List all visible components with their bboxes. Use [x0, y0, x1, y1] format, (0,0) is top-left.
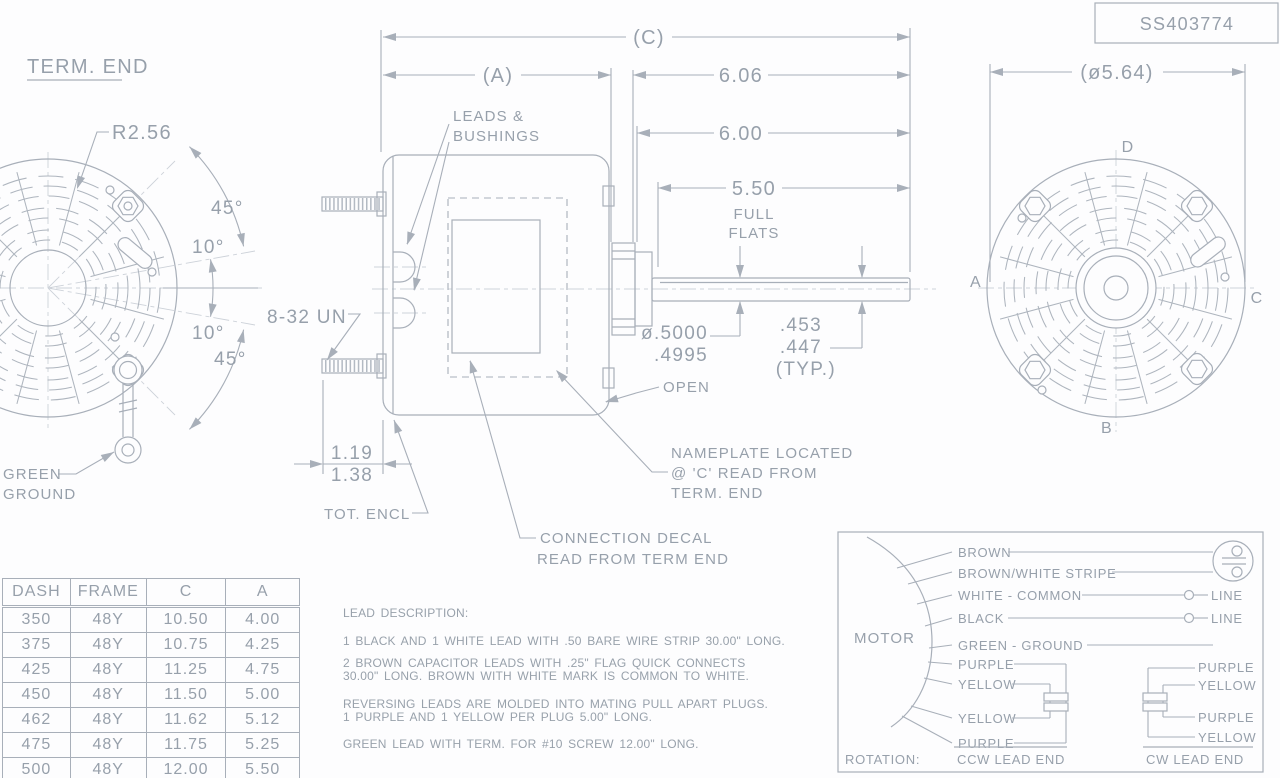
lead-description-line: GREEN LEAD WITH TERM. FOR #10 SCREW 12.0…	[343, 738, 823, 751]
cw-purple-bottom-label: PURPLE	[1198, 710, 1254, 725]
nameplate-note-1: NAMEPLATE LOCATED	[671, 445, 853, 462]
cell-frame: 48Y	[70, 683, 146, 708]
cell-a: 4.75	[226, 658, 300, 683]
table-row: 500 48Y 12.00 5.50	[3, 758, 300, 778]
decal-note-1: CONNECTION DECAL	[540, 530, 713, 547]
green-ground-label-1: GREEN	[3, 466, 62, 483]
cell-c: 11.50	[146, 683, 226, 708]
table-row: 425 48Y 11.25 4.75	[3, 658, 300, 683]
cell-a: 5.50	[226, 758, 300, 778]
cell-a: 5.12	[226, 708, 300, 733]
dim-c-label: (C)	[633, 27, 665, 49]
ccw-plug: PURPLE YELLOW YELLOW PURPLE	[958, 657, 1068, 751]
term-end-view: TERM. END R2.56 45° 10° 10° 45° GREEN GR…	[0, 56, 262, 503]
stud-dim-label-1: 1.19	[331, 443, 373, 464]
rotation-ccw-label: CCW LEAD END	[957, 752, 1065, 767]
lead-brown-white-label: BROWN/WHITE STRIPE	[958, 566, 1117, 581]
lead-description: LEAD DESCRIPTION: 1 BLACK AND 1 WHITE LE…	[343, 607, 823, 751]
cell-c: 10.50	[146, 607, 226, 633]
rotation-cw-label: CW LEAD END	[1146, 752, 1244, 767]
ground-terminal-bolt	[110, 352, 147, 463]
cell-c: 11.25	[146, 658, 226, 683]
cell-c: 12.00	[146, 758, 226, 778]
cell-dash: 450	[3, 683, 71, 708]
motor-label: MOTOR	[854, 630, 915, 647]
line-label-top: LINE	[1211, 588, 1243, 603]
green-ground-label-2: GROUND	[3, 486, 76, 503]
line-terminal-bottom	[1185, 614, 1194, 623]
drawing-canvas: TERM. END R2.56 45° 10° 10° 45° GREEN GR…	[0, 0, 1280, 778]
ccw-yellow-bottom-label: YELLOW	[958, 711, 1016, 726]
spec-table: DASH FRAME C A 350 48Y 10.50 4.00 375 48…	[2, 578, 300, 778]
col-header-frame: FRAME	[70, 579, 146, 607]
dim-dia-564-label: (ø5.64)	[1080, 62, 1154, 84]
marker-b: B	[1101, 420, 1113, 437]
full-flats-label-2: FLATS	[728, 225, 779, 242]
cell-c: 10.75	[146, 633, 226, 658]
cell-frame: 48Y	[70, 633, 146, 658]
lead-black-label: BLACK	[958, 611, 1004, 626]
cw-yellow-bottom-label: YELLOW	[1198, 730, 1256, 745]
col-header-a: A	[226, 579, 300, 607]
cell-dash: 462	[3, 708, 71, 733]
shaft-end-view: (ø5.64) A C B D	[970, 62, 1263, 437]
nameplate-note-2: @ 'C' READ FROM	[671, 465, 818, 482]
side-view: (C) (A) 6.06 6.00 5.50 FULL FLATS ø.5000	[267, 27, 936, 568]
stud-dim-label-2: 1.38	[331, 465, 373, 486]
cell-frame: 48Y	[70, 708, 146, 733]
wiring-diagram: MOTOR BROWN BROWN/WHITE STRIPE WHITE - C…	[838, 532, 1263, 772]
cell-dash: 375	[3, 633, 71, 658]
cell-dash: 425	[3, 658, 71, 683]
dim-a-label: (A)	[483, 65, 514, 87]
angle-10-top-label: 10°	[192, 237, 225, 258]
table-row: 475 48Y 11.75 5.25	[3, 733, 300, 758]
lead-green-ground-label: GREEN - GROUND	[958, 638, 1083, 653]
cell-dash: 350	[3, 607, 71, 633]
cell-c: 11.62	[146, 708, 226, 733]
mounting-bolt-top-left-view	[110, 188, 147, 225]
ccw-yellow-top-label: YELLOW	[958, 677, 1016, 692]
cw-purple-top-label: PURPLE	[1198, 660, 1254, 675]
leads-note-2: BUSHINGS	[453, 128, 540, 145]
table-row: 450 48Y 11.50 5.00	[3, 683, 300, 708]
cell-dash: 500	[3, 758, 71, 778]
angle-10-bottom-label: 10°	[192, 323, 225, 344]
cw-plug: PURPLE YELLOW PURPLE YELLOW	[1143, 660, 1256, 745]
cell-a: 4.00	[226, 607, 300, 633]
nameplate-note-3: TERM. END	[671, 485, 763, 502]
line-label-bottom: LINE	[1211, 611, 1243, 626]
table-row: 350 48Y 10.50 4.00	[3, 607, 300, 633]
angle-45-bottom-label: 45°	[214, 349, 247, 370]
open-note-label: OPEN	[663, 379, 710, 396]
term-end-title: TERM. END	[27, 56, 149, 78]
dim-550-label: 5.50	[732, 178, 776, 200]
capacitor-symbol	[1213, 541, 1253, 581]
shaft-dia-label-1: ø.5000	[641, 323, 708, 344]
ccw-purple-top-label: PURPLE	[958, 657, 1014, 672]
cell-a: 5.00	[226, 683, 300, 708]
lead-brown-label: BROWN	[958, 545, 1011, 560]
ccw-plug-connector	[1044, 693, 1068, 701]
ccw-purple-bottom-label: PURPLE	[958, 736, 1014, 751]
angle-45-top-label: 45°	[211, 198, 244, 219]
cell-frame: 48Y	[70, 607, 146, 633]
table-row: 462 48Y 11.62 5.12	[3, 708, 300, 733]
line-terminal-top	[1185, 591, 1194, 600]
lead-description-line: 1 PURPLE AND 1 YELLOW PER PLUG 5.00" LON…	[343, 711, 823, 724]
stud-thread-label: 8-32 UN	[267, 307, 347, 328]
dim-606-label: 6.06	[719, 65, 763, 87]
cw-plug-connector	[1143, 693, 1167, 701]
marker-a: A	[970, 274, 982, 291]
marker-c: C	[1251, 290, 1264, 307]
part-number-box: SS403774	[1095, 3, 1278, 43]
col-header-dash: DASH	[3, 579, 71, 607]
flat-dim-label-2: .447	[780, 337, 822, 358]
lead-white-common-label: WHITE - COMMON	[958, 588, 1082, 603]
flat-dim-label-1: .453	[780, 315, 822, 336]
radius-dim-label: R2.56	[112, 122, 172, 144]
lead-description-title: LEAD DESCRIPTION:	[343, 607, 823, 620]
full-flats-label-1: FULL	[733, 206, 774, 223]
decal-note-2: READ FROM TERM END	[537, 551, 729, 568]
cell-frame: 48Y	[70, 758, 146, 778]
table-row: 375 48Y 10.75 4.25	[3, 633, 300, 658]
cell-c: 11.75	[146, 733, 226, 758]
dim-600-label: 6.00	[719, 123, 763, 145]
shaft-dia-label-2: .4995	[654, 345, 708, 366]
lead-description-line: 30.00" LONG. BROWN WITH WHITE MARK IS CO…	[343, 670, 823, 683]
marker-d: D	[1122, 139, 1135, 156]
cell-frame: 48Y	[70, 658, 146, 683]
col-header-c: C	[146, 579, 226, 607]
spec-table-header-row: DASH FRAME C A	[3, 579, 300, 607]
cell-a: 5.25	[226, 733, 300, 758]
cell-frame: 48Y	[70, 733, 146, 758]
cell-dash: 475	[3, 733, 71, 758]
lead-description-line: 1 BLACK AND 1 WHITE LEAD WITH .50 BARE W…	[343, 635, 823, 648]
cw-yellow-top-label: YELLOW	[1198, 678, 1256, 693]
drawing-number: SS403774	[1140, 14, 1234, 34]
cell-a: 4.25	[226, 633, 300, 658]
flat-dim-label-typ: (TYP.)	[776, 359, 836, 380]
leads-note-1: LEADS &	[453, 108, 524, 125]
rotation-label: ROTATION:	[845, 752, 920, 767]
enclosure-note-label: TOT. ENCL	[324, 506, 410, 523]
